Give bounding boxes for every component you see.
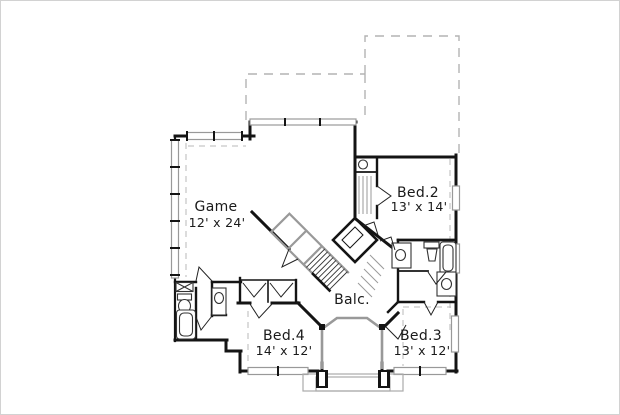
floor-plan-canvas: Game 12' x 24' Bed.2 13' x 14' Balc. Bed… [0,0,620,415]
room-label-bed3: Bed.3 [400,328,442,344]
floor-plan-page: Game 12' x 24' Bed.2 13' x 14' Balc. Bed… [0,0,620,415]
vanity-left-bath [212,288,226,315]
room-dim-bed3: 13' x 12' [394,343,451,358]
chase-circle [359,160,368,169]
bathtub-jack-jill [440,242,456,274]
vanity-jack-jill-2 [437,272,456,296]
room-dim-bed4: 14' x 12' [256,343,313,358]
room-label-bed4: Bed.4 [263,328,305,344]
room-label-balcony: Balc. [334,292,370,308]
room-dim-bed2: 13' x 14' [391,199,448,214]
linen-closet [176,283,193,292]
bathtub-left-bath [177,310,196,339]
room-label-game: Game [195,199,238,215]
room-dim-game: 12' x 24' [189,215,246,230]
vanity-jack-jill-1 [392,243,411,268]
